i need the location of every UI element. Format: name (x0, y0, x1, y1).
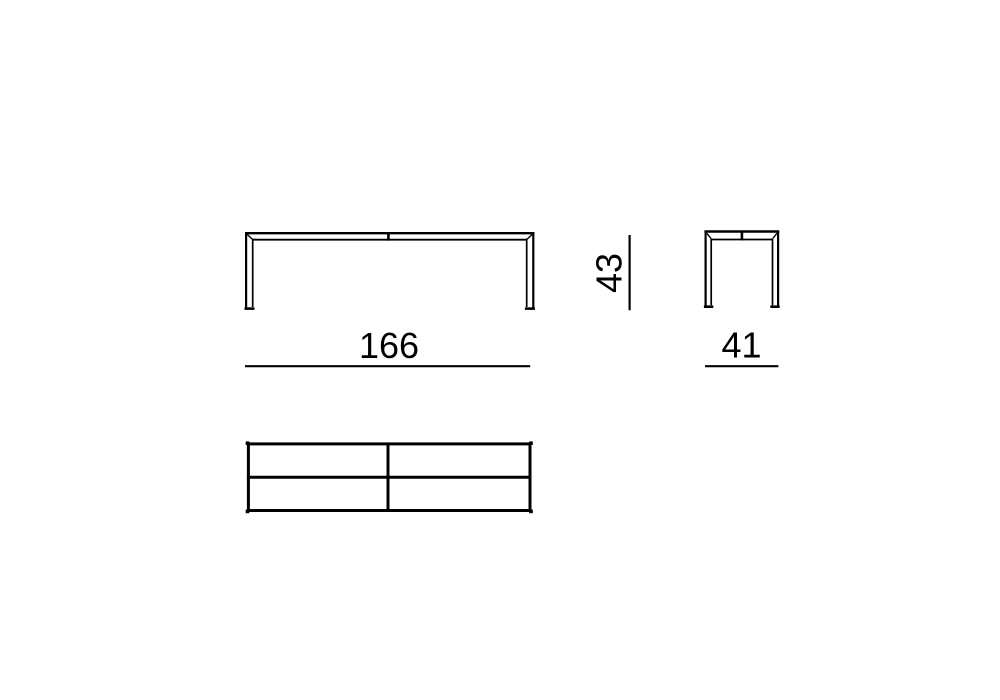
side-tabletop (704, 231, 779, 241)
depth-dimension-label: 41 (721, 325, 761, 366)
front-view (245, 232, 535, 309)
height-dimension-label: 43 (589, 253, 630, 293)
corner-marker-bottom-left (246, 510, 250, 514)
dimension-lines (245, 235, 778, 366)
technical-drawing: 166 41 43 (0, 0, 1000, 700)
corner-marker-top-left (246, 441, 250, 445)
corner-marker-top-right (529, 441, 533, 445)
side-left-corner-miter (707, 233, 711, 238)
front-left-leg (245, 232, 255, 309)
front-tabletop (245, 232, 534, 241)
front-right-corner-miter (527, 234, 532, 239)
drawing-geometry (245, 231, 780, 514)
dimension-labels: 166 41 43 (359, 253, 762, 366)
corner-marker-bottom-right (529, 510, 533, 514)
front-left-corner-miter (247, 234, 252, 239)
drawing-canvas: 166 41 43 (0, 0, 1000, 700)
top-plan-view (246, 441, 533, 513)
side-left-leg (704, 231, 713, 307)
side-view (704, 231, 780, 307)
side-right-leg (770, 231, 779, 307)
width-dimension-label: 166 (359, 325, 419, 366)
front-right-leg (525, 232, 535, 309)
side-right-corner-miter (773, 233, 777, 238)
